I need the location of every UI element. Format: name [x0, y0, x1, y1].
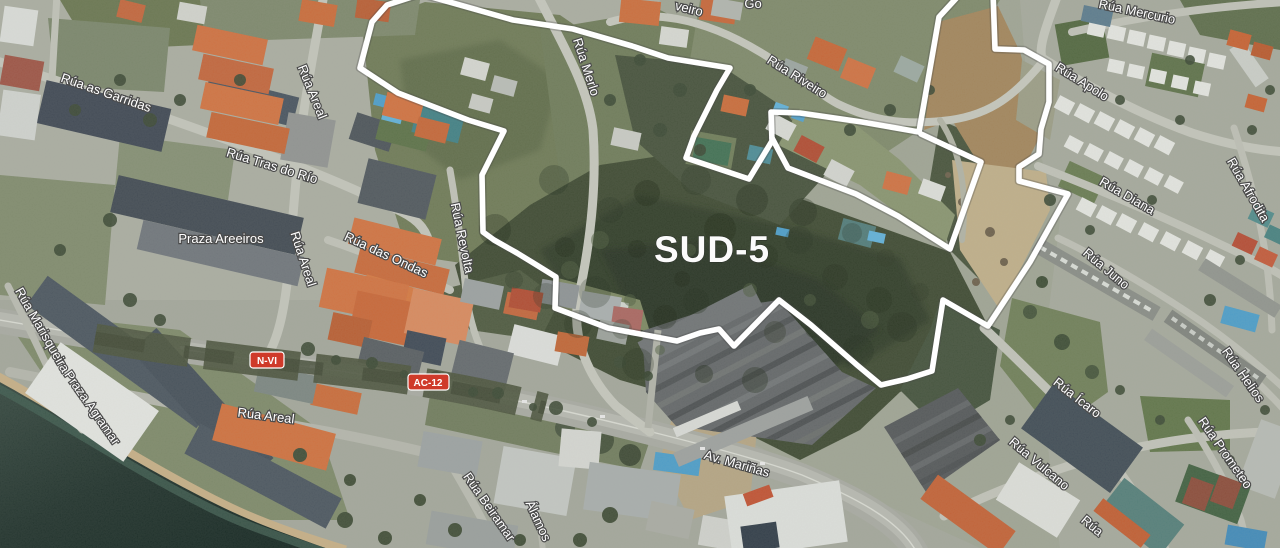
- svg-text:SUD-5: SUD-5: [654, 229, 770, 270]
- svg-text:AC-12: AC-12: [414, 378, 443, 389]
- svg-text:Praza Areeiros: Praza Areeiros: [178, 231, 264, 246]
- svg-text:N-VI: N-VI: [257, 356, 277, 367]
- svg-text:Go: Go: [744, 0, 761, 11]
